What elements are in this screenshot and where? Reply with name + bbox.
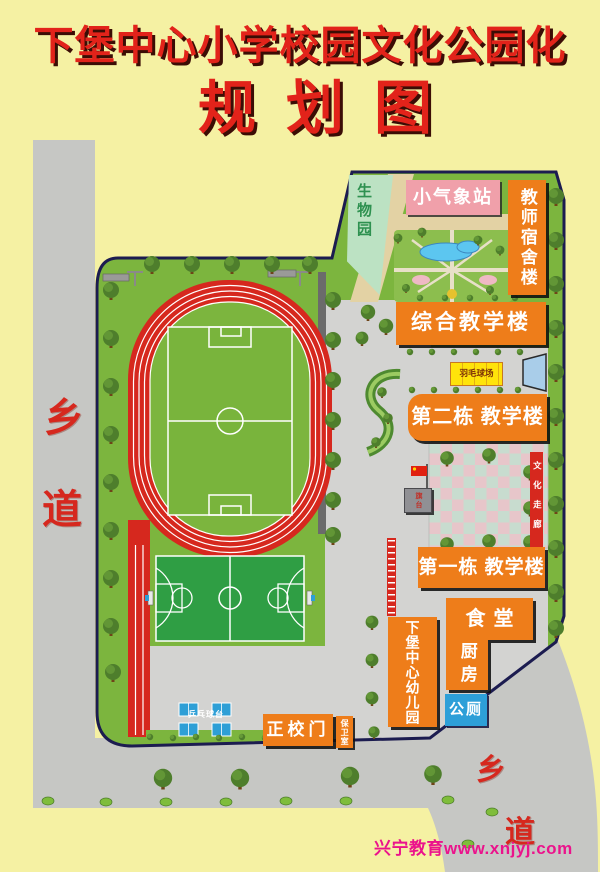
stairs	[387, 538, 396, 616]
biology-garden-label: 生物园	[353, 183, 374, 240]
kindergarten: 下堡中心幼儿园	[388, 617, 437, 727]
badminton-court: 羽毛球场	[450, 362, 503, 386]
landscape-garden	[394, 230, 512, 302]
right-road-label-char1: 乡	[476, 756, 506, 786]
garden-feature	[447, 289, 457, 299]
comprehensive-teaching-building: 综合教学楼	[396, 302, 546, 345]
canteen: 食堂	[446, 598, 533, 640]
poster-subtitle: 规划图	[0, 80, 600, 138]
security-room: 保卫室	[336, 716, 353, 748]
kitchen: 厨房	[446, 640, 488, 690]
side-gate	[523, 354, 546, 391]
table-tennis-label: 乒乓球台	[176, 711, 236, 719]
flag-platform: 旗台	[404, 488, 432, 513]
main-gate: 正校门	[263, 714, 333, 746]
watermark: 兴宁教育www.xnjyj.com	[374, 840, 573, 857]
flower-bed	[412, 275, 430, 285]
soccer-field	[168, 327, 292, 515]
campus-plan-poster: 下堡中心小学校园文化公园化 规划图 乡 道 乡 道 生物园 小气象站 教师宿舍楼…	[0, 0, 600, 872]
culture-corridor: 文化走廊	[530, 452, 543, 548]
public-toilet: 公厕	[445, 694, 487, 726]
track-straight	[128, 520, 150, 737]
basketball-court	[145, 556, 315, 641]
teaching-building-no2: 第二栋 教学楼	[408, 394, 547, 441]
teaching-building-no1: 第一栋 教学楼	[418, 547, 545, 588]
left-road-label-char2: 道	[42, 490, 82, 530]
teacher-dormitory: 教师宿舍楼	[508, 180, 546, 295]
left-road	[33, 140, 95, 808]
weather-station: 小气象站	[406, 180, 500, 215]
poster-title: 下堡中心小学校园文化公园化	[0, 26, 600, 66]
left-road-label-char1: 乡	[44, 398, 84, 438]
flower-bed	[479, 275, 497, 285]
